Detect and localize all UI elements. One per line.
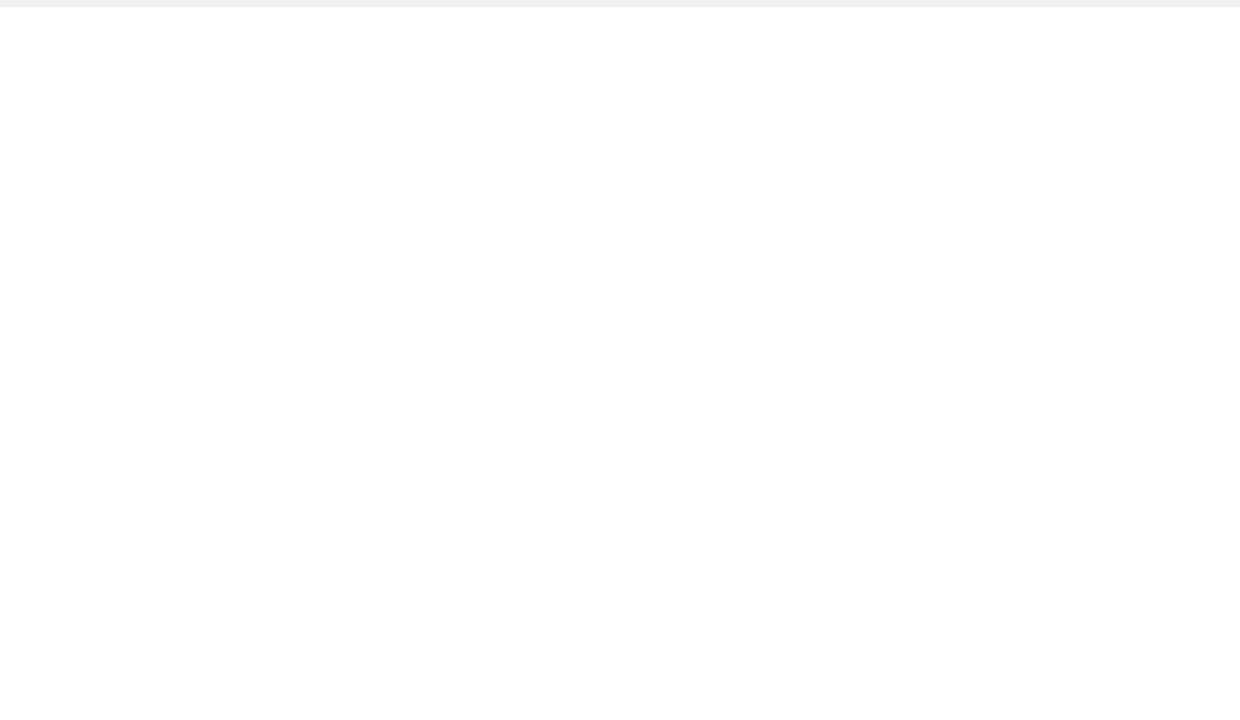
footer-bar <box>0 706 1240 720</box>
drawing-sheet <box>0 0 1240 720</box>
footer-accent-segment <box>337 706 377 720</box>
site-plan <box>0 0 1240 720</box>
summary-table <box>872 527 1238 530</box>
